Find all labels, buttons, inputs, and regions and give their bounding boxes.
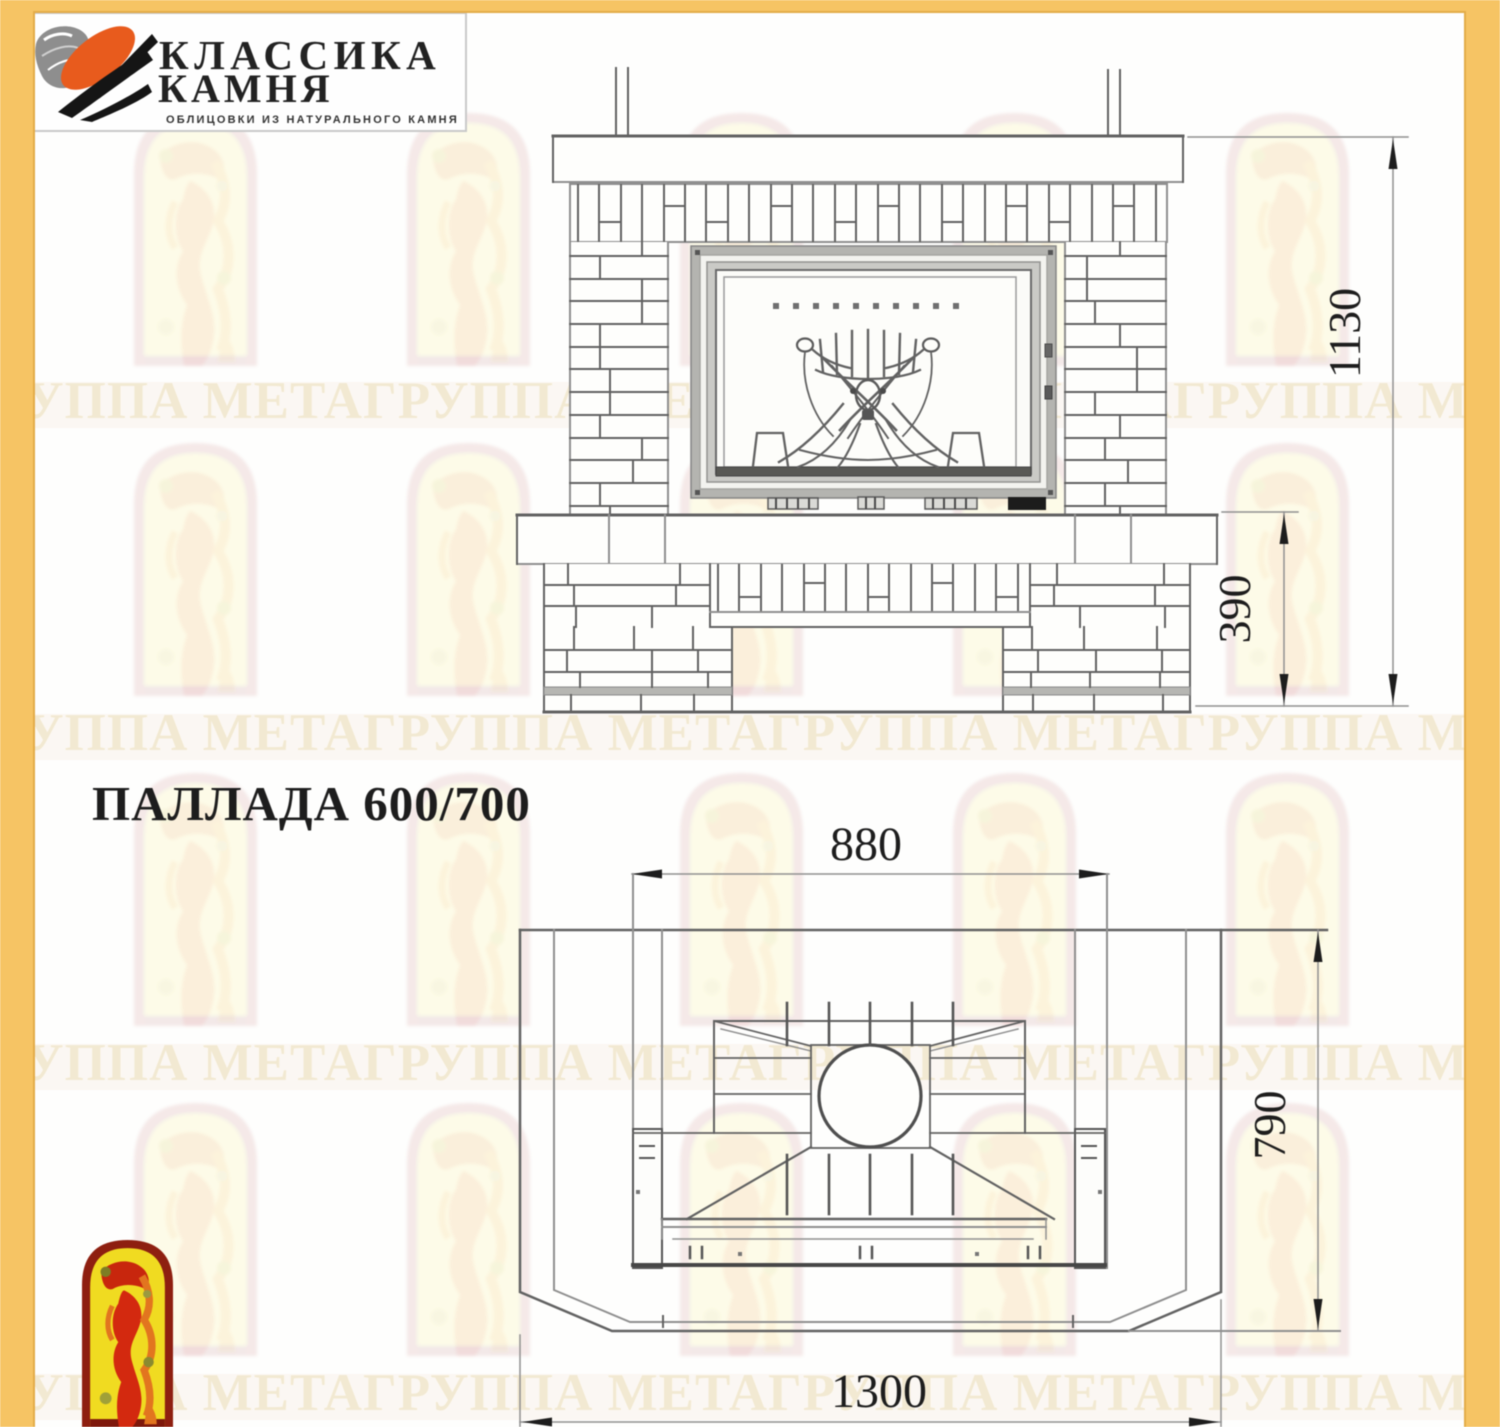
svg-text:ОБЛИЦОВКИ ИЗ НАТУРАЛЬНОГО КАМН: ОБЛИЦОВКИ ИЗ НАТУРАЛЬНОГО КАМНЯ (166, 114, 459, 126)
svg-text:390: 390 (1209, 575, 1260, 644)
svg-text:790: 790 (1244, 1091, 1295, 1160)
svg-text:ГРУППА МЕТАГРУППА МЕТАГРУППА М: ГРУППА МЕТАГРУППА МЕТАГРУППА МЕТАГРУППА … (0, 1034, 1500, 1092)
svg-text:ПАЛЛАДА 600/700: ПАЛЛАДА 600/700 (92, 776, 531, 831)
svg-text:КАМНЯ: КАМНЯ (158, 66, 334, 111)
svg-text:880: 880 (830, 818, 902, 871)
svg-text:ГРУППА МЕТАГРУППА МЕТАГРУППА М: ГРУППА МЕТАГРУППА МЕТАГРУППА МЕТАГРУППА … (0, 1364, 1500, 1422)
svg-text:1300: 1300 (831, 1365, 927, 1418)
svg-text:1130: 1130 (1319, 288, 1370, 378)
